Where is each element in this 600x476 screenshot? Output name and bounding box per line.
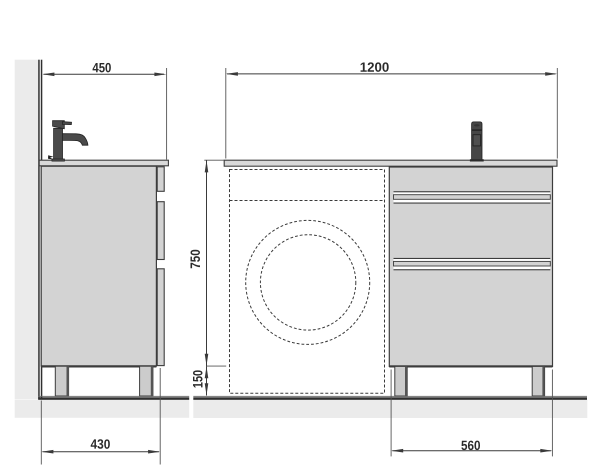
svg-text:150: 150 xyxy=(190,370,205,388)
svg-text:450: 450 xyxy=(92,60,111,75)
svg-text:750: 750 xyxy=(188,249,203,268)
svg-text:560: 560 xyxy=(461,438,481,453)
svg-text:1200: 1200 xyxy=(360,60,390,75)
svg-text:430: 430 xyxy=(90,437,110,452)
